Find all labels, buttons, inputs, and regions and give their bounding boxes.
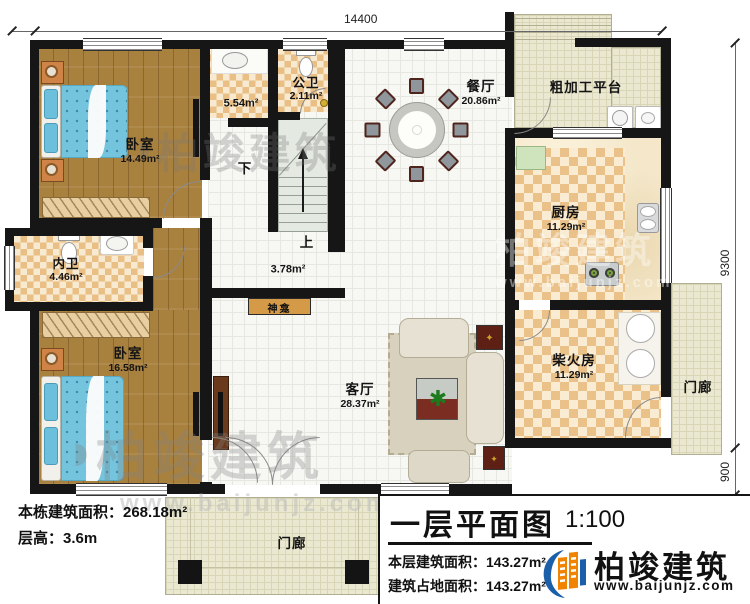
- wall: [268, 112, 300, 120]
- utility-sink-basin: [641, 112, 655, 124]
- window: [553, 127, 622, 139]
- wall: [575, 38, 671, 47]
- wall: [550, 300, 671, 310]
- wall: [5, 302, 153, 311]
- room-label-wash-area: 5.54m²: [224, 98, 259, 111]
- tv-icon: [193, 99, 199, 157]
- room-label-bedroom2: 卧室 16.58m²: [108, 346, 147, 374]
- dining-chair: [453, 123, 469, 138]
- dining-chair: [365, 123, 381, 138]
- bedside-lamp-icon: [45, 65, 58, 78]
- wok-pot-icon: [626, 314, 655, 343]
- room-label-bedroom1: 卧室 14.49m²: [120, 137, 159, 165]
- porch-front-inner-line: [190, 497, 359, 568]
- wardrobe: [42, 312, 150, 338]
- wall: [505, 438, 671, 448]
- side-table: ✦: [476, 325, 503, 350]
- wall: [30, 218, 162, 228]
- floor-area-line: 本层建筑面积：143.27m²: [388, 552, 546, 572]
- bedside-lamp-icon: [45, 352, 58, 365]
- stove-burner: [605, 268, 615, 278]
- window: [83, 38, 162, 51]
- dimension-line-top: [12, 31, 662, 32]
- sink-icon: [106, 236, 128, 251]
- room-label-firewood: 柴火房 11.29m²: [552, 353, 596, 381]
- pillow: [44, 383, 58, 421]
- dimension-right-main: 9300: [718, 247, 732, 279]
- footprint-line: 建筑占地面积：143.27m²: [388, 576, 546, 596]
- kitchen-sink-basin: [640, 219, 656, 230]
- side-table: ✦: [483, 446, 505, 470]
- room-label-dining: 餐厅 20.86m²: [461, 79, 500, 107]
- wall: [200, 218, 212, 228]
- window: [283, 38, 327, 51]
- bed-blanket: [88, 85, 106, 158]
- wall: [212, 288, 345, 298]
- note-floor-height: 层高：3.6m: [18, 527, 97, 548]
- stair-up-label: 上: [300, 235, 315, 251]
- room-label-living: 客厅 28.37m²: [340, 382, 379, 410]
- note-total-area: 本栋建筑面积：268.18m²: [18, 501, 187, 522]
- room-label-porch-front: 门廊: [278, 536, 307, 552]
- porch-right-floor: [671, 283, 722, 455]
- pillow: [44, 427, 58, 465]
- brand-site: www.baijunjz.com: [594, 578, 735, 593]
- platform-steps: [514, 14, 612, 40]
- dining-chair: [409, 166, 424, 182]
- sofa-loveseat: [399, 318, 469, 358]
- wall: [30, 310, 39, 494]
- floor-plan: ✱ ✦ ✦ 神龛: [0, 0, 750, 604]
- tv-icon: [218, 392, 223, 436]
- wall: [505, 133, 515, 448]
- wall: [268, 40, 278, 232]
- wall: [200, 228, 212, 440]
- dimension-top: 14400: [341, 12, 380, 26]
- wall: [661, 38, 671, 188]
- tv-icon: [193, 392, 199, 436]
- sofa-bench: [408, 450, 470, 483]
- stair-arrow-head: [298, 148, 308, 159]
- wall: [30, 40, 39, 228]
- room-label-public-bath: 公卫 2.11m²: [290, 76, 323, 102]
- sofa-long: [466, 352, 504, 444]
- wall: [328, 40, 345, 252]
- wall: [505, 300, 519, 310]
- washer-drum: [612, 110, 628, 126]
- plant-icon: ✱: [424, 385, 452, 413]
- pillow: [44, 123, 58, 153]
- fridge-icon: [516, 146, 546, 170]
- dining-chair: [409, 78, 424, 94]
- porch-column-right: [345, 560, 369, 584]
- wall: [143, 276, 153, 310]
- window: [660, 188, 672, 283]
- room-label-platform: 粗加工平台: [550, 80, 623, 96]
- wall: [228, 118, 268, 127]
- kitchen-sink-basin: [640, 206, 656, 217]
- room-label-kitchen: 厨房 11.29m²: [547, 205, 586, 233]
- wall: [143, 228, 153, 248]
- stove-burner: [589, 268, 599, 278]
- porch-column-left: [178, 560, 202, 584]
- brand-logo-icon: [538, 546, 590, 600]
- dimension-right-porch: 900: [718, 459, 732, 485]
- pillow: [44, 89, 58, 119]
- room-label-inner-bath: 内卫 4.46m²: [49, 257, 82, 283]
- plan-scale: 1:100: [565, 506, 625, 534]
- wall: [505, 12, 514, 97]
- window: [76, 483, 167, 496]
- stair-down-label: 下: [238, 161, 253, 177]
- shrine-label: 神龛: [268, 304, 292, 315]
- title-underline: [388, 542, 592, 545]
- wall: [5, 228, 153, 236]
- room-label-porch-right: 门廊: [684, 380, 713, 396]
- bedside-lamp-icon: [45, 163, 58, 176]
- wall: [200, 40, 210, 180]
- bed-blanket: [86, 376, 104, 481]
- wardrobe: [42, 197, 150, 218]
- dining-table-center: [412, 125, 422, 135]
- wok-pot-icon: [626, 349, 655, 378]
- plan-title: 一层平面图: [390, 500, 555, 544]
- stair-arrow-line: [302, 158, 304, 212]
- shrine-box: 神龛: [248, 298, 311, 315]
- toilet-icon: [299, 57, 313, 77]
- sink-icon: [222, 52, 248, 69]
- room-label-hall-area: 3.78m²: [271, 264, 306, 277]
- window: [4, 246, 15, 290]
- window: [404, 38, 444, 51]
- title-block: 一层平面图 1:100 本层建筑面积：143.27m² 建筑占地面积：143.2…: [378, 494, 750, 604]
